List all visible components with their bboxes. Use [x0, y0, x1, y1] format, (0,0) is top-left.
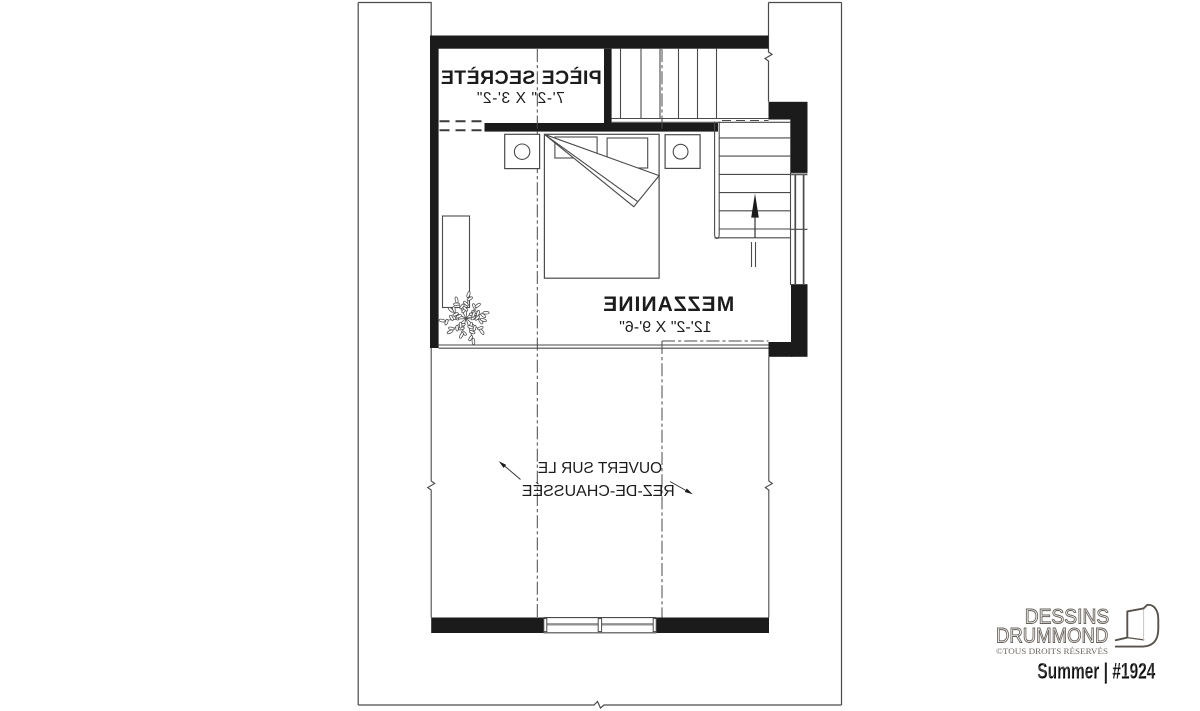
svg-text:MEZZANINE: MEZZANINE	[603, 293, 734, 316]
svg-text:12'-2" X 9'-6": 12'-2" X 9'-6"	[619, 319, 712, 336]
svg-text:DRUMMOND: DRUMMOND	[996, 625, 1108, 648]
svg-text:OUVERT SUR LE: OUVERT SUR LE	[538, 460, 662, 477]
svg-text:REZ-DE-CHAUSSÉE: REZ-DE-CHAUSSÉE	[522, 481, 675, 500]
svg-text:Summer | #1924: Summer | #1924	[1036, 657, 1154, 682]
svg-text:7'-2" X 3'-2": 7'-2" X 3'-2"	[477, 90, 565, 107]
svg-text:PIÈCE SECRÈTE: PIÈCE SECRÈTE	[441, 66, 602, 89]
svg-text:©TOUS DROITS RÉSERVÉS: ©TOUS DROITS RÉSERVÉS	[996, 646, 1108, 656]
